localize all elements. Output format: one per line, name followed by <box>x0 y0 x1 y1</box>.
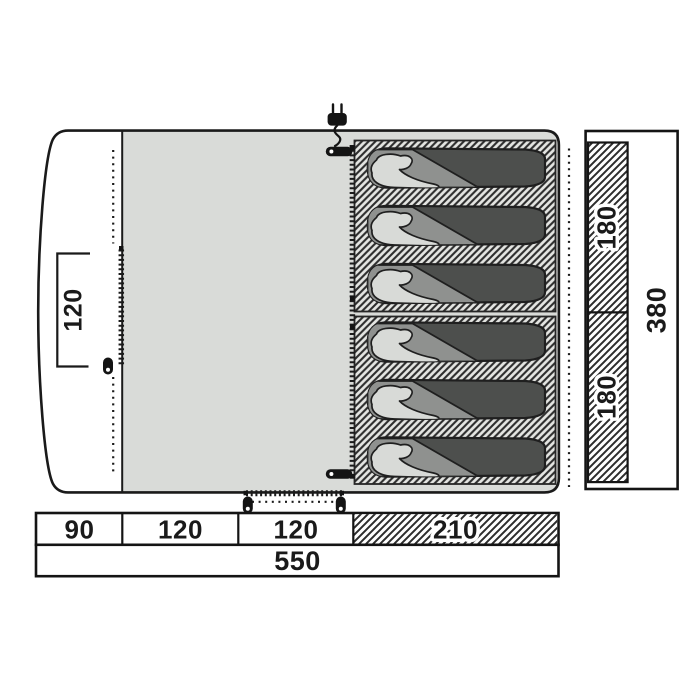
zipper-stop <box>350 324 355 329</box>
width-total-label: 380 <box>642 287 672 334</box>
porch-zipper-pull <box>103 358 113 375</box>
sleeping-bag-5 <box>368 380 546 420</box>
sleeping-bag-1 <box>368 148 546 188</box>
zipper-stop <box>340 491 345 496</box>
door-zipper-pull-left <box>243 497 253 514</box>
length-segment-label-3: 120 <box>274 515 319 545</box>
sleeping-bag-3 <box>368 264 546 304</box>
width-segment-label-2: 180 <box>594 375 622 419</box>
zipper-stop <box>119 246 124 251</box>
tent-floorplan-diagram: 120 180 180 380 90 120 120 210 5 <box>0 0 700 700</box>
sleeping-bag-4 <box>368 322 546 362</box>
sleeping-bag-6 <box>368 437 546 477</box>
zipper-stop <box>244 491 249 496</box>
porch-zipper <box>119 246 124 367</box>
porch-depth-label: 120 <box>60 288 88 331</box>
length-total-label: 550 <box>274 546 321 576</box>
width-segment-label-1: 180 <box>594 205 622 249</box>
length-segment-label-1: 90 <box>65 515 95 545</box>
zipper-stop <box>350 296 355 301</box>
inner-tent-zipper-pull-bottom <box>326 469 353 479</box>
length-segment-label-2: 120 <box>158 515 203 545</box>
width-dimension-box: 180 180 380 <box>586 131 678 489</box>
length-segment-label-4: 210 <box>433 515 478 545</box>
door-zipper-pull-right <box>336 497 346 514</box>
length-dimension-rows: 90 120 120 210 550 <box>36 513 559 576</box>
sleeping-bag-2 <box>368 206 546 246</box>
inner-tent-zipper-pull-top <box>326 147 353 157</box>
